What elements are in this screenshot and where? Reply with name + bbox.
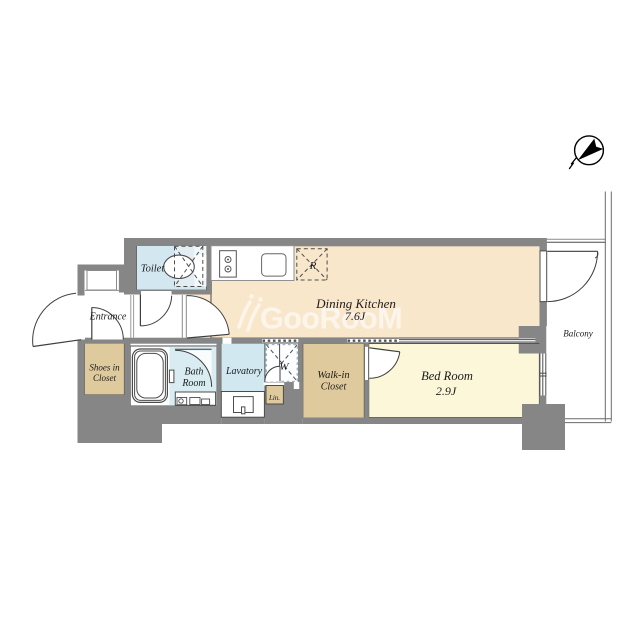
svg-text:Shoes in: Shoes in — [89, 363, 120, 373]
svg-text:Lin.: Lin. — [268, 394, 280, 402]
svg-text:Walk-in: Walk-in — [317, 370, 349, 381]
svg-text:Balcony: Balcony — [563, 328, 593, 338]
svg-text:Room: Room — [181, 378, 205, 389]
svg-text:Toilet: Toilet — [141, 264, 166, 275]
svg-text:Entrance: Entrance — [89, 312, 127, 323]
svg-text:Closet: Closet — [93, 373, 117, 383]
svg-text:7.6J: 7.6J — [345, 309, 366, 323]
svg-text:R: R — [309, 260, 317, 272]
svg-text:Closet: Closet — [321, 382, 347, 393]
svg-text:Lavatory: Lavatory — [225, 366, 263, 377]
svg-text:Bed Room: Bed Room — [421, 369, 473, 383]
svg-text:W: W — [279, 361, 289, 373]
svg-text:Bath: Bath — [185, 367, 204, 378]
svg-text:2.9J: 2.9J — [436, 384, 457, 398]
